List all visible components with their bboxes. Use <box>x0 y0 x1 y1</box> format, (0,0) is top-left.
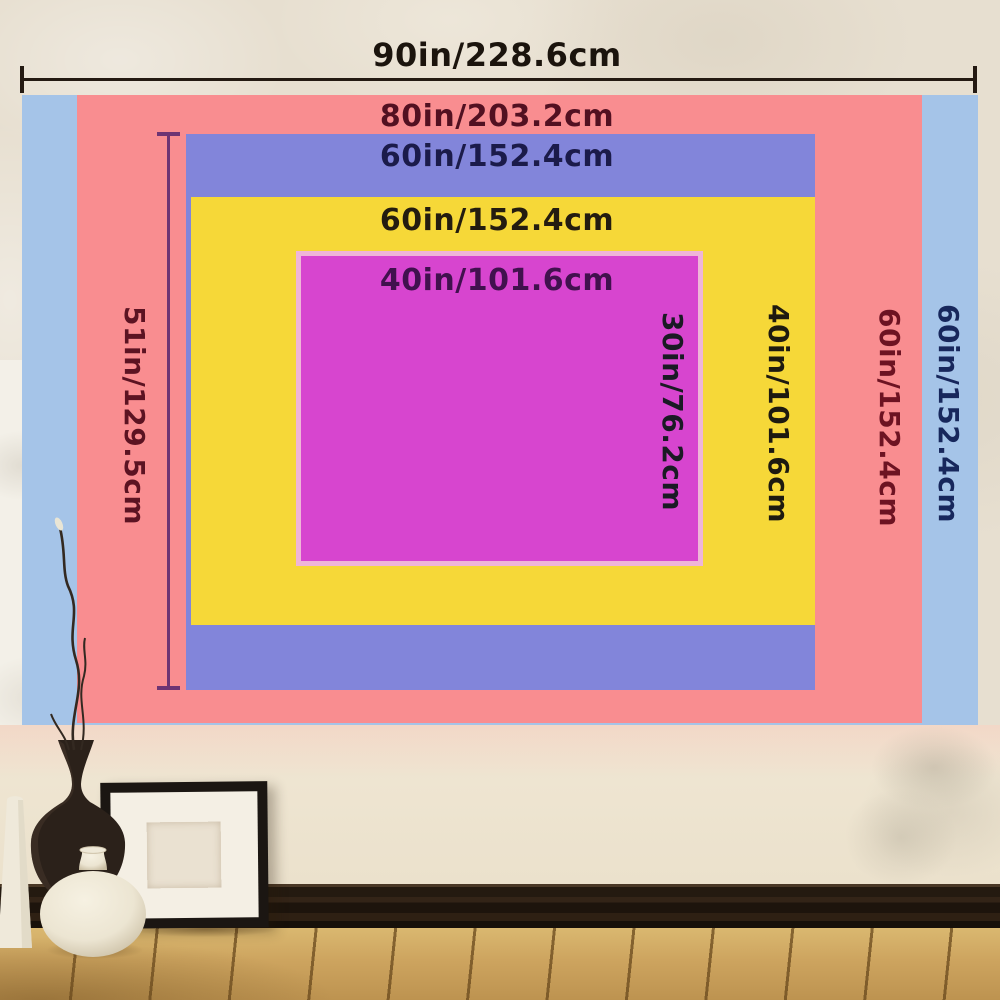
label-height-blue: 60in/152.4cm <box>932 304 965 523</box>
height-ruler-cap-bottom <box>157 686 180 690</box>
label-width-pink: 80in/203.2cm <box>380 99 614 134</box>
width-ruler-line <box>22 78 977 81</box>
wall-texture-patch-right <box>835 715 1000 890</box>
label-height-yellow: 40in/101.6cm <box>762 304 795 523</box>
round-white-vase <box>36 846 148 958</box>
label-width-magenta: 40in/101.6cm <box>380 263 614 298</box>
height-ruler-line <box>167 134 170 689</box>
width-ruler-cap-right <box>973 66 977 93</box>
label-width-yellow: 60in/152.4cm <box>380 203 614 238</box>
label-height-magenta: 30in/76.2cm <box>656 312 689 511</box>
label-height-pink: 60in/152.4cm <box>873 308 906 527</box>
picture-frame-art <box>147 822 222 889</box>
label-height-purple: 51in/129.5cm <box>118 306 151 525</box>
label-width-blue: 90in/228.6cm <box>372 36 622 74</box>
tapestry-size-chart-image: 90in/228.6cm 80in/203.2cm 60in/152.4cm 6… <box>0 0 1000 1000</box>
label-width-purple: 60in/152.4cm <box>380 139 614 174</box>
tapestry-magenta-40x30 <box>296 251 703 566</box>
width-ruler-cap-left <box>20 66 24 93</box>
height-ruler-cap-top <box>157 132 180 136</box>
twigs <box>38 500 108 752</box>
